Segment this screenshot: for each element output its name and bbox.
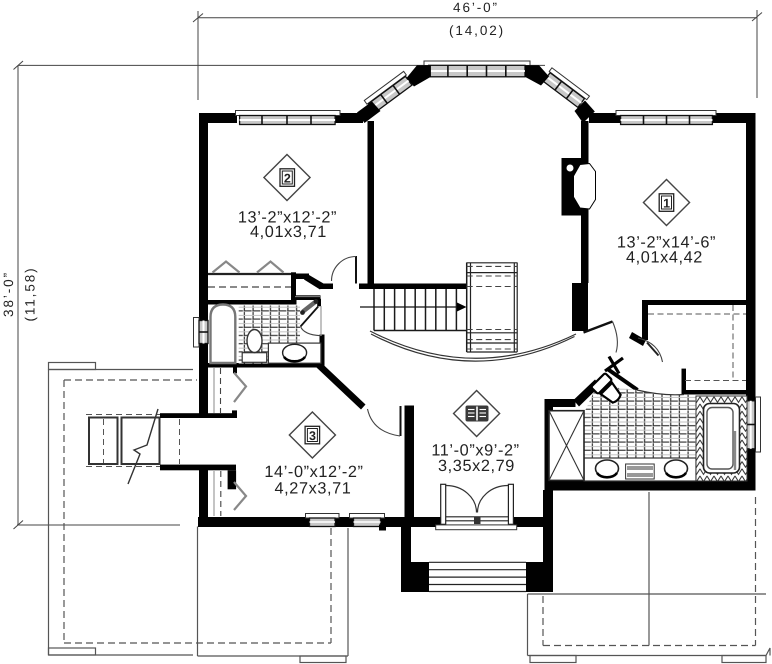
svg-text:4,01x3,71: 4,01x3,71 — [250, 223, 327, 241]
svg-text:3: 3 — [309, 429, 316, 443]
svg-text:14’-0”x12’-2”: 14’-0”x12’-2” — [264, 463, 363, 481]
svg-text:46’-0”: 46’-0” — [453, 0, 499, 15]
svg-text:1: 1 — [663, 197, 670, 211]
svg-text:4,01x4,42: 4,01x4,42 — [626, 249, 703, 267]
svg-text:2: 2 — [284, 172, 291, 186]
svg-text:38’-0”: 38’-0” — [1, 271, 16, 317]
svg-text:(14,02): (14,02) — [449, 23, 505, 38]
svg-text:(11,58): (11,58) — [23, 266, 38, 321]
svg-text:3,35x2,79: 3,35x2,79 — [438, 457, 515, 475]
svg-text:4,27x3,71: 4,27x3,71 — [275, 480, 352, 498]
